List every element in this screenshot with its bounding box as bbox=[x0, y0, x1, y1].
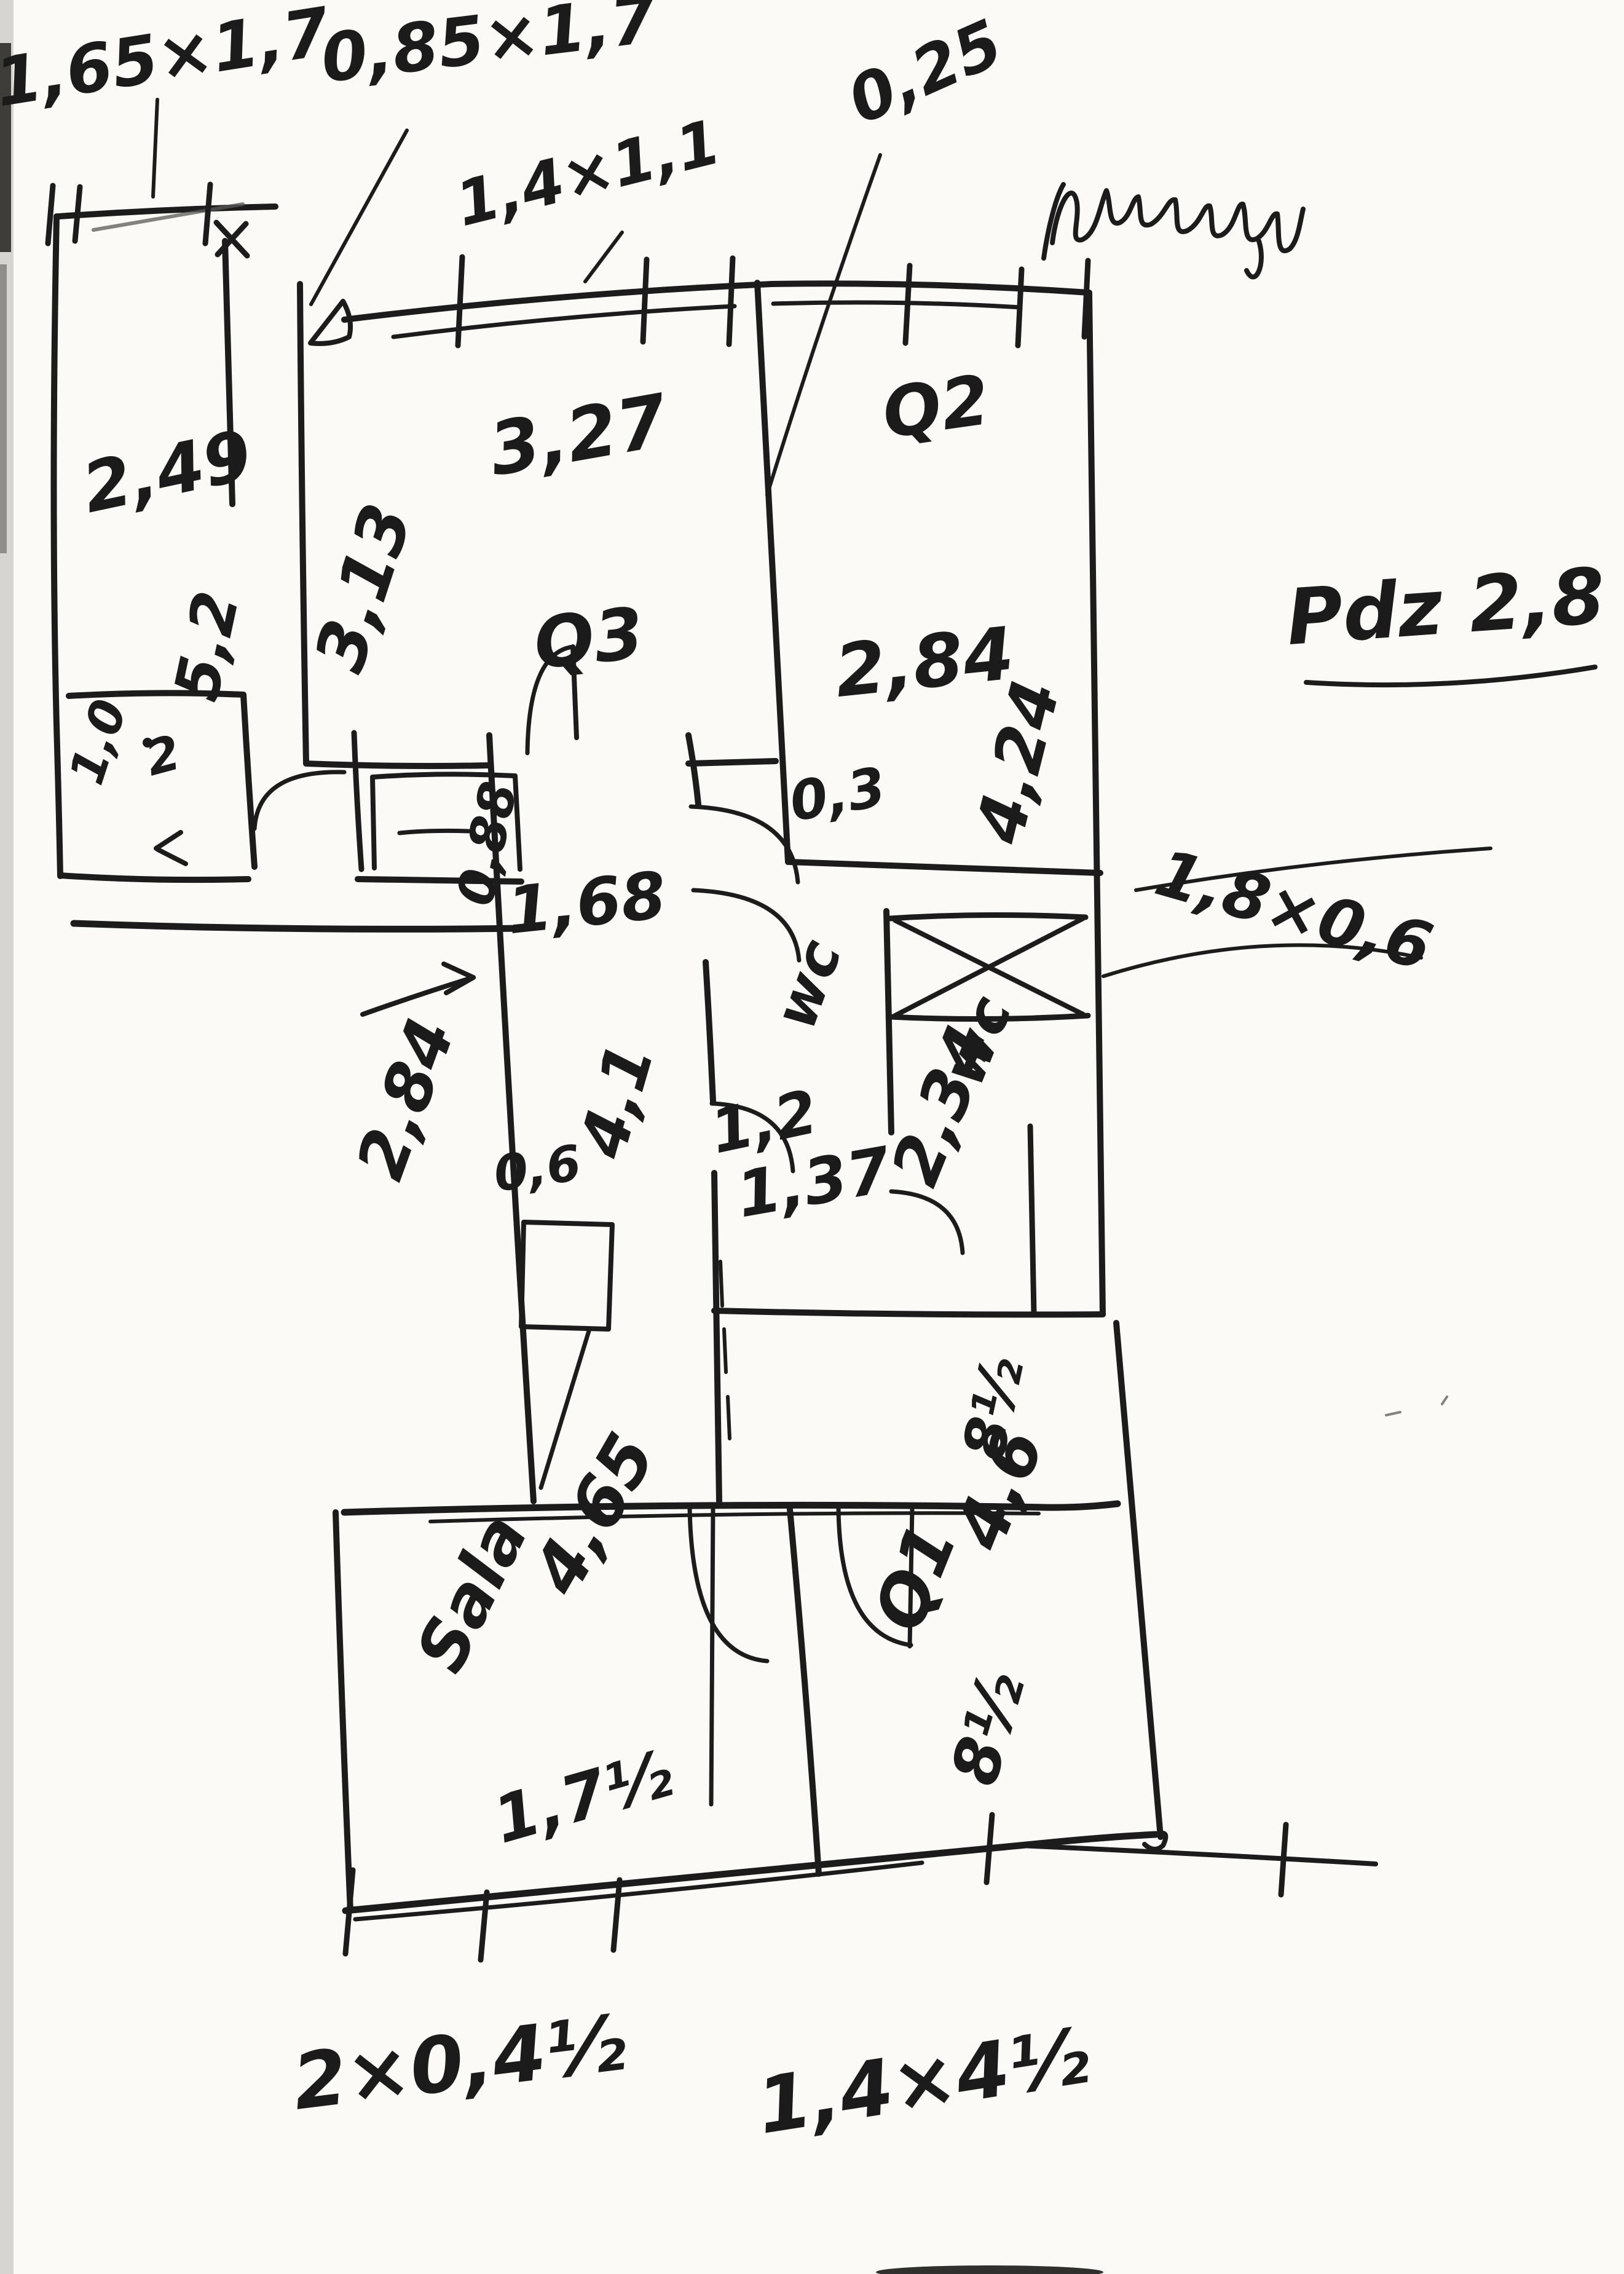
closet-left bbox=[372, 777, 374, 868]
window-tick-b bbox=[1018, 269, 1022, 345]
floor-plan-sketch: 2,49 5,2 1,0 2 3,27 Q3 3,13 Q2 2,84 bbox=[0, 0, 1624, 2274]
window-tick-b bbox=[643, 259, 647, 342]
window-tick-c bbox=[729, 258, 733, 344]
scanned-sketch-page: 2,49 5,2 1,0 2 3,27 Q3 3,13 Q2 2,84 bbox=[0, 0, 1624, 2274]
wall-stub-03 bbox=[688, 761, 776, 764]
room-q2-name-label: Q2 bbox=[878, 360, 995, 454]
wc-big-partition bbox=[1030, 1126, 1034, 1313]
scan-edge-mark-2 bbox=[0, 264, 7, 553]
room-q3-name-label: Q3 bbox=[530, 592, 648, 685]
door-leaf-sala bbox=[711, 1509, 713, 1804]
wall-bottom bbox=[306, 764, 489, 766]
cupboard-dim-label: 0,6 bbox=[491, 1134, 585, 1203]
closet-shelf bbox=[400, 831, 468, 833]
